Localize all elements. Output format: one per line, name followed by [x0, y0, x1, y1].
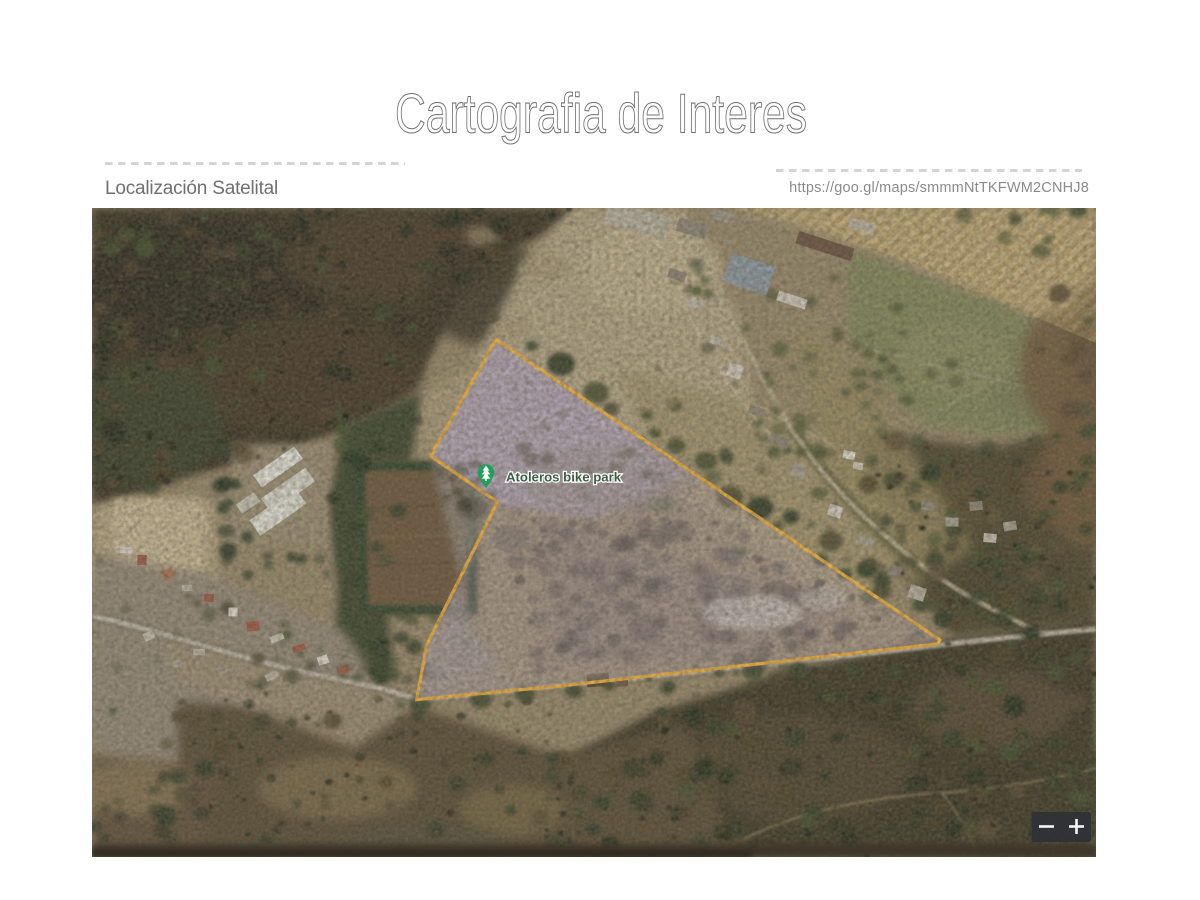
- svg-text:Cartografia de Interes: Cartografia de Interes: [395, 82, 807, 145]
- svg-text:Atoleros bike park: Atoleros bike park: [506, 470, 622, 485]
